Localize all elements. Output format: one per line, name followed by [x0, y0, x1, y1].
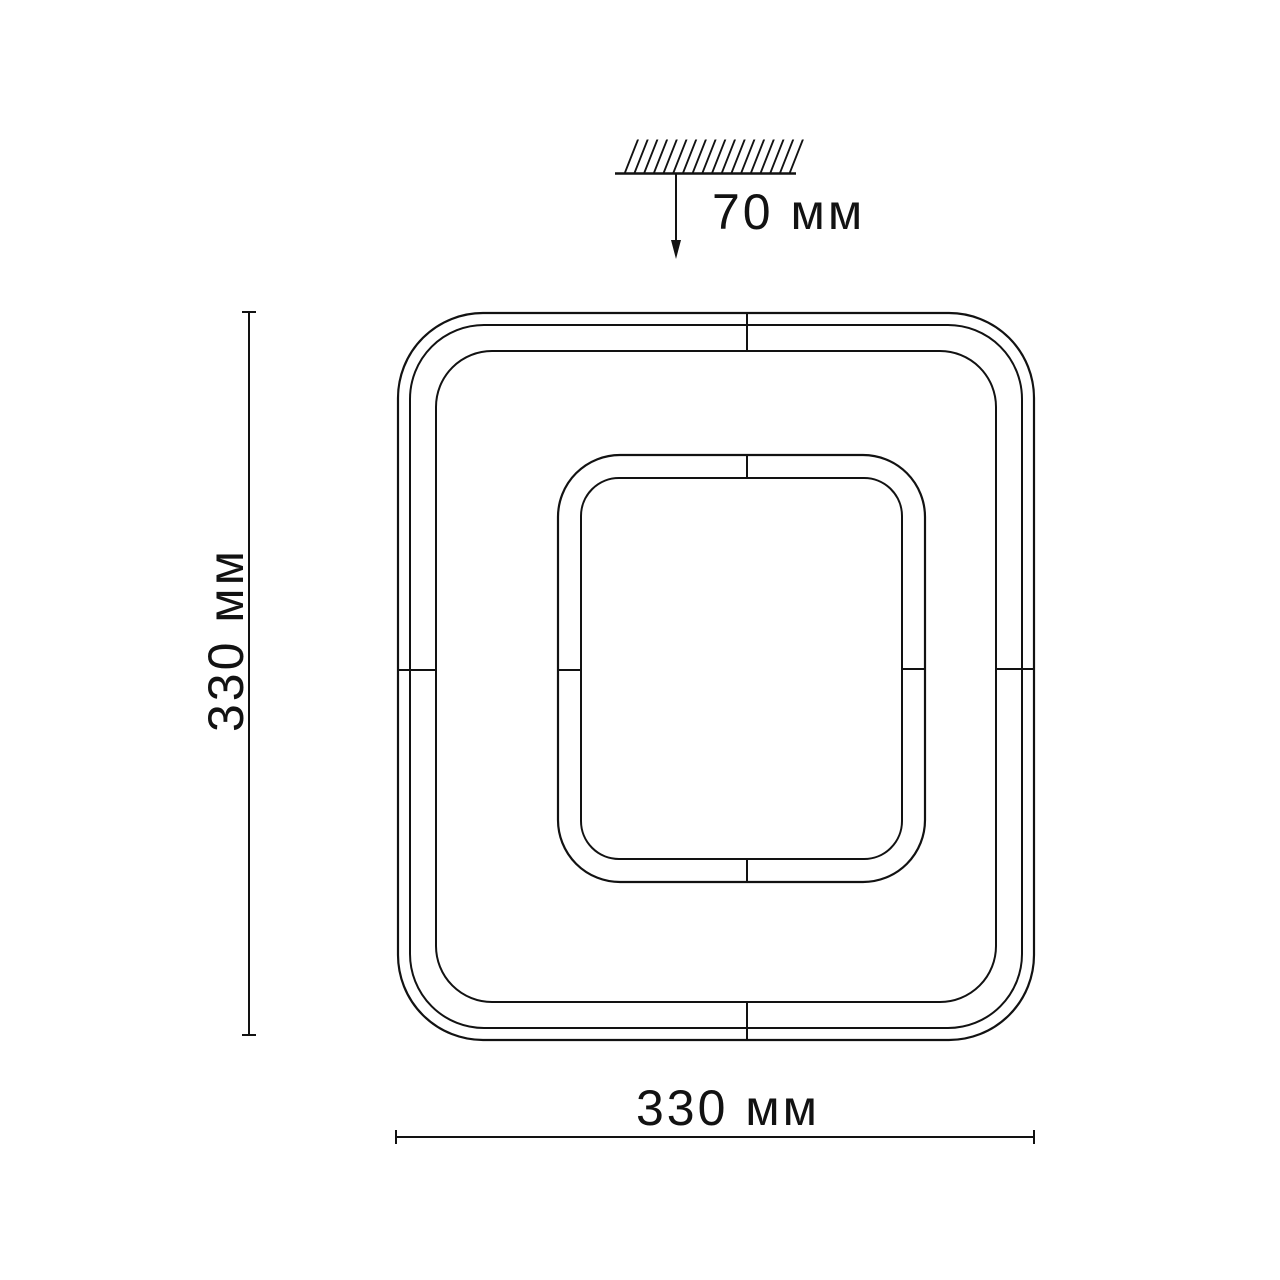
mount-height-dimension: 70 мм: [671, 174, 865, 259]
width-dimension: 330 мм: [396, 1080, 1034, 1144]
mount-height-label: 70 мм: [712, 184, 865, 240]
ceiling-symbol: [615, 140, 803, 174]
ceiling-hatch-icon: [625, 140, 803, 173]
inner-ring-outer-edge: [558, 455, 925, 882]
fixture-drawing: [397, 312, 1035, 1041]
fixture-outer-edge: [398, 313, 1034, 1040]
dimension-diagram: 70 мм 330 мм: [0, 0, 1280, 1280]
fixture-rim-inner-edge: [436, 351, 996, 1002]
width-dimension-label: 330 мм: [636, 1080, 820, 1136]
inner-ring-inner-edge: [581, 478, 902, 859]
down-arrow-icon: [671, 240, 681, 259]
dimension-diagram-page: 70 мм 330 мм: [0, 0, 1280, 1280]
height-dimension-label: 330 мм: [198, 548, 254, 732]
height-dimension: 330 мм: [198, 312, 256, 1035]
fixture-rim-middle-edge: [410, 325, 1022, 1028]
